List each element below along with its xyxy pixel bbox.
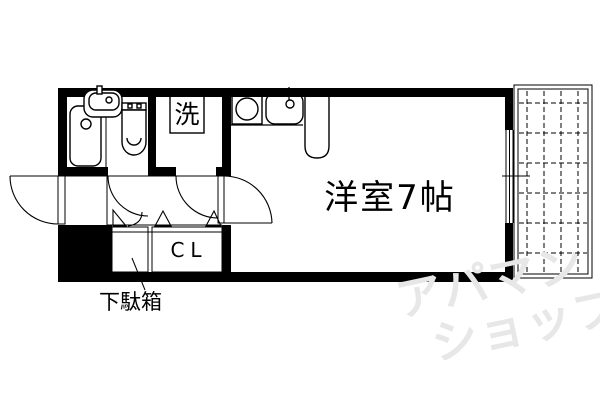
balcony-window (502, 130, 530, 223)
shoe-cabinet-door-flag (113, 210, 126, 226)
entrance-door-frame (58, 176, 65, 224)
wall-bath-bottom-right (216, 167, 231, 176)
bifold-door-marker-right (206, 211, 221, 226)
floor-plan: 洗 洋室7帖 CL (0, 0, 600, 400)
kitchen-counter-end (305, 97, 329, 158)
kitchen-sink (266, 93, 303, 124)
doors (10, 176, 272, 226)
toilet-bowl (122, 110, 146, 155)
shoe-cabinet-label: 下駄箱 (99, 290, 162, 314)
bathroom (70, 86, 146, 167)
bathroom-door-arc (108, 176, 148, 216)
washroom-door-arc (176, 176, 218, 218)
room-door-arc (224, 176, 272, 223)
wall-closet-right (222, 225, 231, 272)
wall-bath-bottom-mid (148, 167, 176, 176)
shoe-cabinet-box (112, 227, 148, 272)
washer-room: 洗 (170, 95, 204, 133)
main-room-label: 洋室7帖 (324, 178, 456, 218)
wall-left (58, 88, 67, 176)
wall-bath-divider (148, 88, 156, 176)
entrance-pillar-block (58, 225, 112, 272)
room-door-frame (218, 176, 224, 223)
bifold-door-marker-left (155, 211, 171, 226)
wall-right-top (505, 88, 513, 130)
washbasin-bowl (89, 93, 119, 110)
toilet-tank (122, 103, 146, 110)
kitchen-faucet (286, 100, 294, 108)
kitchen (231, 87, 329, 158)
wall-bath-bottom-left (58, 167, 108, 176)
wall-washroom-right (222, 88, 231, 176)
stove-burner (236, 98, 258, 120)
entrance-door-arc (10, 176, 58, 224)
washbasin-faucet (97, 86, 102, 94)
floor-plan-canvas: 洗 洋室7帖 CL (0, 0, 600, 400)
closet-label: CL (170, 238, 207, 262)
watermark: アパマン ショップ (391, 230, 600, 377)
washing-machine-label: 洗 (174, 100, 199, 129)
